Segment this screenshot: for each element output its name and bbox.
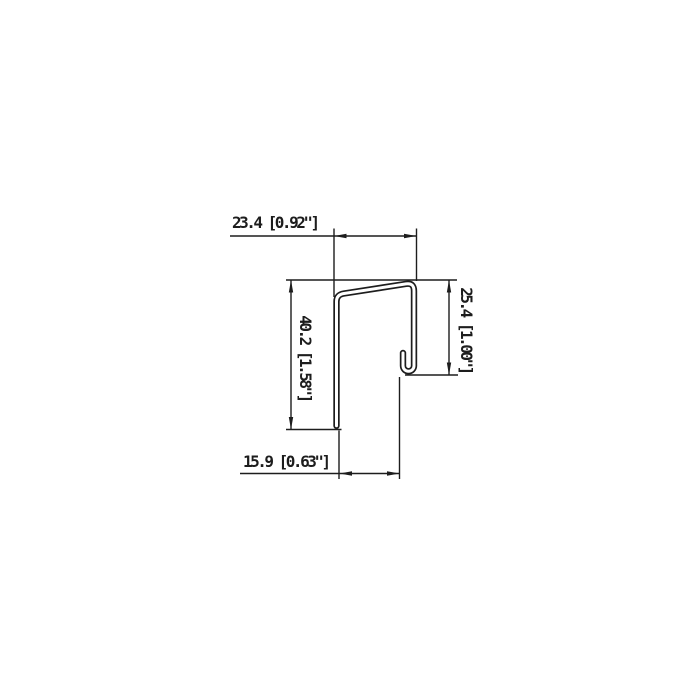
top-dim-arrow-right [404, 234, 417, 238]
dimension-label-top: 23.4 [0.92"] [232, 215, 318, 231]
profile-drawing-svg [0, 0, 700, 700]
technical-drawing-canvas: 23.4 [0.92"] 40.2 [1.58"] 25.4 [1.00"] 1… [0, 0, 700, 700]
bottom-dim-arrow-right [387, 471, 400, 475]
dimension-lines [230, 229, 458, 480]
profile-outline-core [337, 284, 415, 426]
dimension-label-left: 40.2 [1.58"] [297, 315, 313, 401]
top-dim-arrow-left [334, 234, 347, 238]
dimension-label-bottom: 15.9 [0.63"] [243, 454, 329, 470]
dimension-label-right: 25.4 [1.00"] [458, 287, 474, 373]
left-dim-arrow-down [289, 417, 293, 430]
profile-outline [337, 284, 415, 426]
left-dim-arrow-up [289, 280, 293, 293]
bottom-dim-arrow-left [340, 471, 353, 475]
right-dim-arrow-up [447, 280, 451, 293]
right-dim-arrow-down [447, 363, 451, 376]
